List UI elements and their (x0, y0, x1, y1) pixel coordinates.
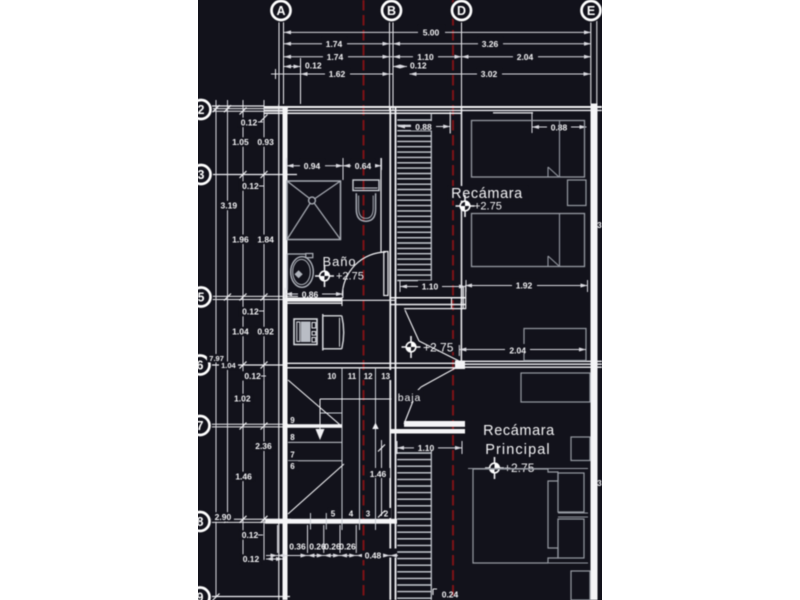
svg-text:0.93: 0.93 (257, 137, 274, 147)
svg-text:1.92: 1.92 (516, 281, 533, 291)
svg-text:0.94: 0.94 (304, 161, 321, 171)
svg-text:2.36: 2.36 (255, 441, 272, 451)
svg-text:3: 3 (597, 479, 602, 488)
svg-text:0.12: 0.12 (243, 554, 260, 564)
svg-text:0.12: 0.12 (242, 530, 259, 540)
svg-text:0.12: 0.12 (242, 307, 259, 317)
svg-text:0.12: 0.12 (244, 371, 261, 381)
svg-text:5: 5 (198, 290, 205, 304)
svg-text:10: 10 (327, 372, 336, 381)
svg-text:1.84: 1.84 (257, 234, 274, 244)
svg-text:0.12: 0.12 (305, 61, 322, 71)
svg-text:1.10: 1.10 (422, 282, 439, 292)
svg-text:3.26: 3.26 (482, 39, 499, 49)
svg-text:3: 3 (597, 221, 602, 230)
svg-text:0.86: 0.86 (302, 289, 319, 299)
svg-text:1.74: 1.74 (327, 52, 344, 62)
svg-text:1.10: 1.10 (418, 443, 435, 453)
svg-text:+2.75: +2.75 (474, 201, 502, 213)
svg-text:0.26: 0.26 (339, 541, 356, 551)
svg-text:0.88: 0.88 (415, 122, 432, 132)
svg-text:2.04: 2.04 (509, 345, 526, 355)
svg-text:0.48: 0.48 (365, 551, 382, 561)
svg-text:1.04: 1.04 (221, 361, 236, 370)
svg-text:7: 7 (290, 450, 295, 459)
svg-text:1.96: 1.96 (232, 234, 249, 244)
svg-text:baja: baja (398, 392, 421, 404)
svg-text:1.05: 1.05 (232, 137, 249, 147)
svg-text:Principal: Principal (485, 442, 551, 458)
svg-text:1.02: 1.02 (234, 394, 251, 404)
svg-text:5: 5 (331, 510, 336, 519)
svg-text:0.36: 0.36 (289, 541, 306, 551)
svg-text:0.24: 0.24 (442, 590, 459, 600)
svg-text:D: D (457, 4, 466, 18)
svg-text:2.90: 2.90 (215, 512, 232, 522)
svg-text:3.02: 3.02 (481, 69, 498, 79)
svg-text:0.64: 0.64 (355, 161, 372, 171)
svg-text:2: 2 (198, 103, 205, 117)
svg-text:6: 6 (290, 462, 295, 471)
svg-text:Recámara: Recámara (483, 423, 555, 439)
svg-text:E: E (587, 4, 595, 18)
svg-text:12: 12 (364, 372, 373, 381)
svg-text:+2.75: +2.75 (336, 271, 364, 283)
svg-text:0.92: 0.92 (257, 327, 274, 337)
svg-text:13: 13 (381, 372, 390, 381)
svg-text:5.00: 5.00 (423, 28, 440, 38)
svg-text:Baño: Baño (323, 254, 357, 269)
svg-text:8: 8 (290, 433, 295, 442)
svg-text:4: 4 (349, 510, 354, 519)
svg-text:9: 9 (290, 416, 295, 425)
svg-text:1.62: 1.62 (329, 69, 346, 79)
svg-text:11: 11 (348, 372, 357, 381)
svg-text:1.46: 1.46 (370, 469, 387, 479)
svg-text:1.74: 1.74 (326, 39, 343, 49)
svg-text:3: 3 (366, 510, 371, 519)
svg-text:1.04: 1.04 (232, 327, 249, 337)
svg-text:0.12: 0.12 (410, 61, 427, 71)
svg-text:0.12: 0.12 (242, 181, 259, 191)
svg-text:1.46: 1.46 (235, 471, 252, 481)
svg-text:0.12: 0.12 (241, 117, 258, 127)
svg-text:+2.75: +2.75 (423, 341, 454, 355)
svg-text:A: A (276, 4, 285, 18)
svg-text:3: 3 (198, 168, 205, 182)
svg-text:B: B (387, 4, 396, 18)
svg-text:3.19: 3.19 (221, 201, 238, 211)
svg-text:2.04: 2.04 (517, 52, 534, 62)
